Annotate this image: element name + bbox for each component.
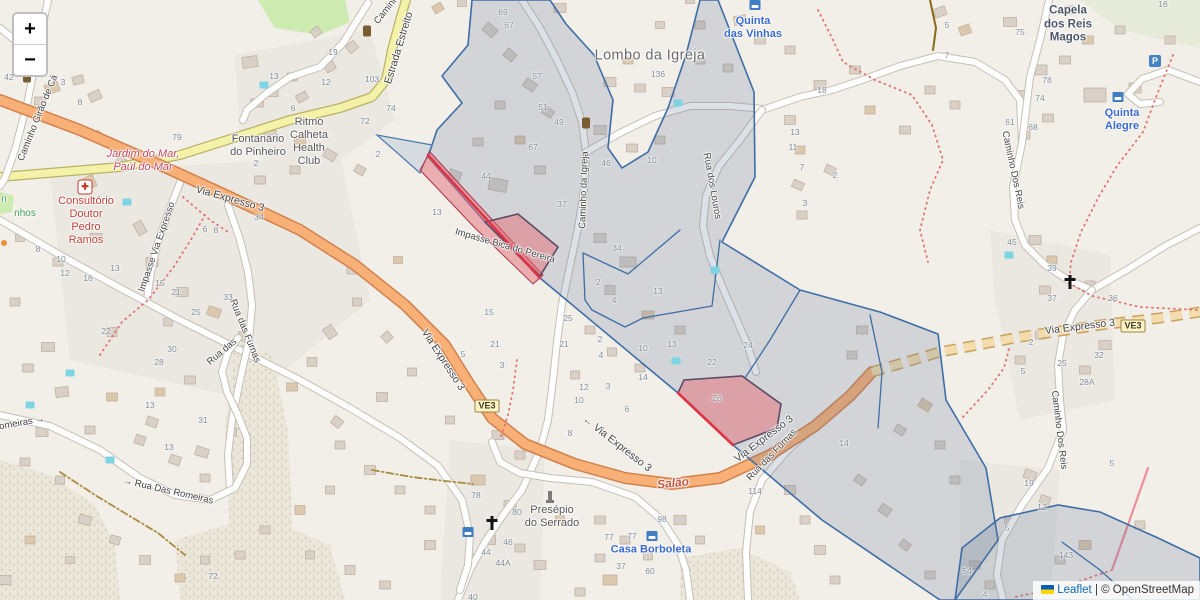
pool-icon (106, 457, 115, 464)
pool-icon (66, 370, 75, 377)
shop-dot-icon (1, 240, 7, 246)
road-ref-badge: VE3 (474, 400, 499, 413)
road-ref-badge: VE3 (1120, 320, 1145, 333)
pool-icon (711, 267, 720, 274)
pool-icon (26, 402, 35, 409)
guest-icon (750, 0, 761, 10)
parking-icon: P (1149, 55, 1161, 67)
cross-icon (486, 516, 499, 530)
openstreetmap-link[interactable]: © OpenStreetMap (1101, 584, 1194, 596)
pool-icon (672, 358, 681, 365)
pool-icon (1005, 252, 1014, 259)
zoom-out-button[interactable]: − (14, 45, 46, 75)
guest-icon (647, 531, 658, 541)
basemap-graphics (0, 0, 1200, 600)
zoom-control: + − (12, 12, 48, 77)
leaflet-map-canvas[interactable]: Lombo da IgrejaQuinta das VinhasCapela d… (0, 0, 1200, 600)
ukraine-flag-icon (1041, 585, 1054, 594)
pool-icon (260, 82, 269, 89)
zoom-in-button[interactable]: + (14, 14, 46, 45)
leaflet-link[interactable]: Leaflet (1057, 584, 1092, 596)
attribution-separator: | (1092, 584, 1101, 596)
waste-icon (363, 28, 371, 37)
pool-icon (674, 100, 683, 107)
hospital-icon: ✚ (78, 180, 93, 195)
statue-icon (545, 491, 555, 503)
guest-icon (1113, 92, 1124, 102)
attribution-bar: Leaflet | © OpenStreetMap (1033, 581, 1200, 600)
guest-icon (463, 527, 474, 537)
pool-icon (123, 199, 132, 206)
cross-icon (1064, 275, 1077, 289)
waste-icon (582, 120, 590, 129)
